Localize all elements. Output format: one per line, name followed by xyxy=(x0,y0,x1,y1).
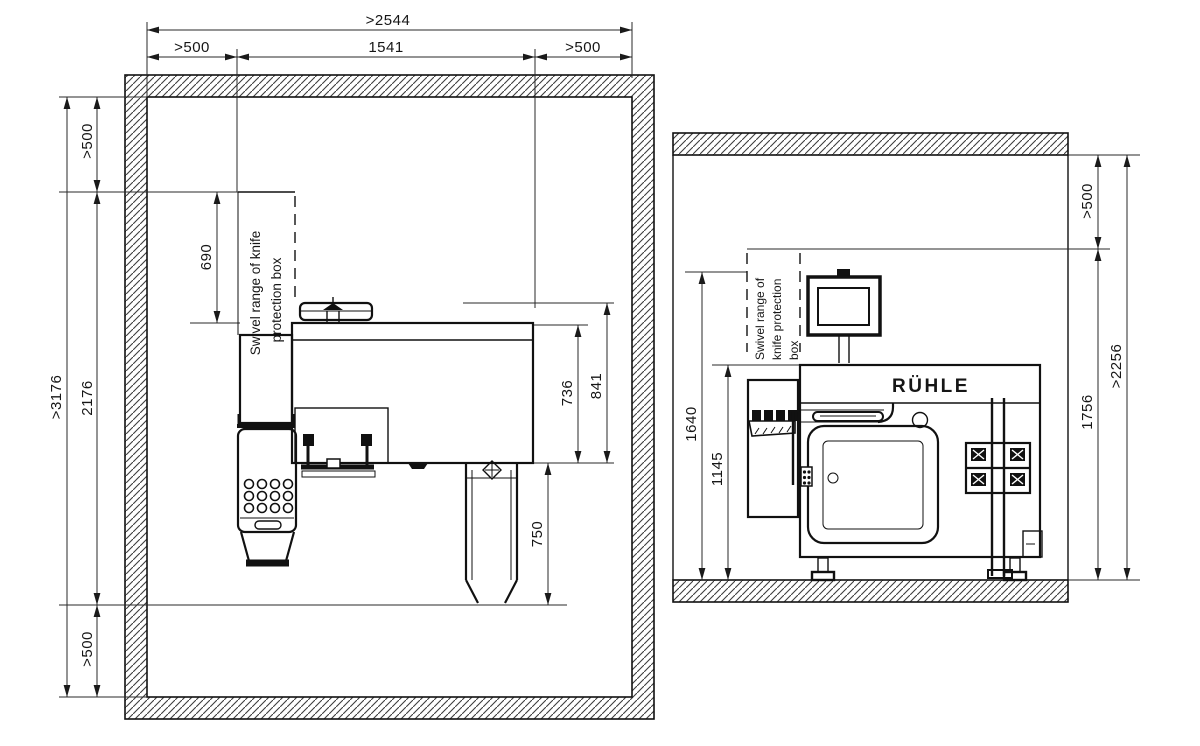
dim-736: 736 xyxy=(559,380,576,407)
elevation-table-edge xyxy=(800,403,893,422)
elevation-rail-clamp xyxy=(966,398,1030,578)
plan-swivel-label-2: protection box xyxy=(269,257,284,342)
elevation-knife-box xyxy=(748,380,812,517)
elevation-dim-left: 1640 1145 xyxy=(683,272,728,580)
plan-view: >2544 >500 1541 >500 >3176 >500 2176 >50… xyxy=(48,12,654,719)
plan-dim-left: >3176 >500 2176 >500 xyxy=(48,97,97,697)
dim-750: 750 xyxy=(529,521,546,548)
dim-clear-top: >500 xyxy=(79,123,96,159)
elevation-swivel-range: Swivel range of knife protection box xyxy=(747,253,801,360)
dim-swivel-depth: 690 xyxy=(198,244,215,271)
elevation-machine: RÜHLE xyxy=(748,365,1042,580)
dim-clear-left: >500 xyxy=(174,39,210,56)
dim-clear-right: >500 xyxy=(565,39,601,56)
plan-swivel-label-1: Swivel range of knife xyxy=(248,231,263,356)
dim-1640: 1640 xyxy=(683,406,700,441)
dim-machine-depth: 2176 xyxy=(79,380,96,415)
elevation-dim-right: >500 1756 >2256 xyxy=(1079,155,1127,580)
dim-room-width: >2544 xyxy=(366,12,411,29)
elev-swivel-label-2: knife protection xyxy=(770,279,784,360)
dim-room-depth: >3176 xyxy=(48,375,65,420)
dim-1756: 1756 xyxy=(1079,394,1096,429)
elevation-monitor xyxy=(808,269,880,363)
dim-1145: 1145 xyxy=(709,452,726,486)
drawing-svg: >2544 >500 1541 >500 >3176 >500 2176 >50… xyxy=(0,0,1200,746)
elevation-door xyxy=(808,413,938,544)
installation-drawing: >2544 >500 1541 >500 >3176 >500 2176 >50… xyxy=(0,0,1200,746)
brand-logo: RÜHLE xyxy=(892,376,970,397)
elevation-view: Swivel range of knife protection box RÜH… xyxy=(673,133,1140,602)
dim-machine-width: 1541 xyxy=(368,39,403,56)
elev-swivel-label-1: Swivel range of xyxy=(753,277,767,360)
plan-dim-top: >2544 >500 1541 >500 xyxy=(147,12,632,57)
elevation-room xyxy=(673,133,1068,602)
dim-clear-ceiling: >500 xyxy=(1079,183,1096,219)
elev-swivel-label-3: box xyxy=(787,341,801,360)
dim-clear-bottom: >500 xyxy=(79,631,96,667)
floor-slab xyxy=(673,580,1068,602)
dim-841: 841 xyxy=(588,373,605,400)
dim-room-height: >2256 xyxy=(1108,344,1125,389)
ceiling-slab xyxy=(673,133,1068,155)
